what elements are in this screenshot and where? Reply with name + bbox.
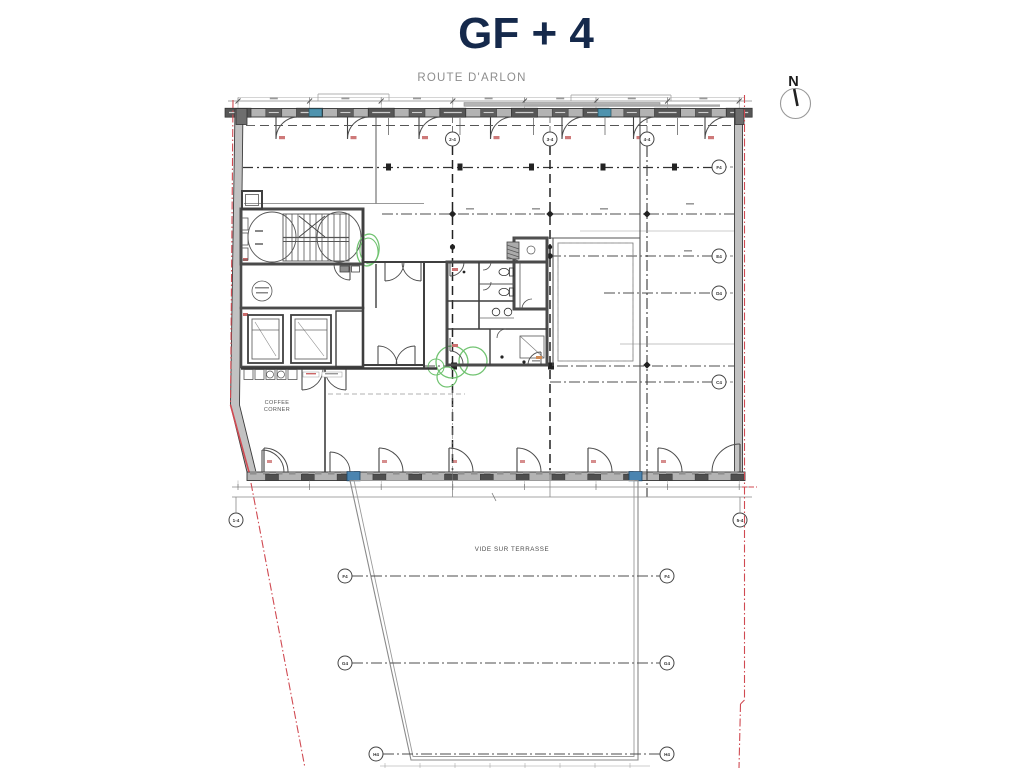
svg-text:3-4: 3-4 (547, 137, 554, 142)
svg-text:G4: G4 (664, 661, 671, 666)
svg-text:F4: F4 (664, 574, 670, 579)
svg-text:N: N (788, 74, 798, 90)
svg-text:2-4: 2-4 (449, 137, 456, 142)
svg-text:CORNER: CORNER (264, 407, 290, 413)
svg-text:GF + 4: GF + 4 (458, 9, 594, 58)
svg-text:H4: H4 (664, 752, 670, 757)
svg-text:E4: E4 (716, 254, 722, 259)
svg-text:F4: F4 (342, 574, 348, 579)
svg-text:1-4: 1-4 (233, 518, 240, 523)
svg-text:COFFEE: COFFEE (265, 400, 290, 406)
svg-text:D4: D4 (716, 291, 722, 296)
svg-text:G4: G4 (342, 661, 349, 666)
svg-text:ROUTE D'ARLON: ROUTE D'ARLON (417, 72, 526, 84)
svg-text:C4: C4 (716, 380, 722, 385)
svg-text:F4: F4 (716, 165, 722, 170)
svg-text:VIDE SUR TERRASSE: VIDE SUR TERRASSE (475, 546, 549, 553)
svg-text:H4: H4 (373, 752, 379, 757)
svg-text:4-4: 4-4 (644, 137, 651, 142)
svg-text:5-4: 5-4 (737, 518, 744, 523)
